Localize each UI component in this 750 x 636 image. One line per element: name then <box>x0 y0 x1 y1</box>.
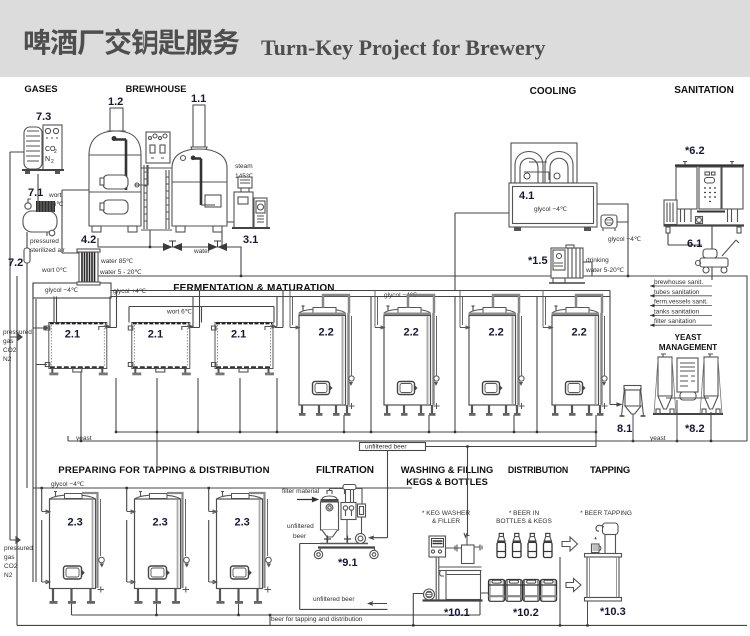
svg-text:tanks sanitation: tanks sanitation <box>654 308 700 315</box>
svg-text:gas: gas <box>3 338 14 345</box>
svg-text:water 85℃: water 85℃ <box>100 258 134 265</box>
svg-text:CO2: CO2 <box>4 563 18 570</box>
svg-text:TAPPING: TAPPING <box>590 465 630 476</box>
svg-text:ferm.vessels sanit.: ferm.vessels sanit. <box>654 299 708 306</box>
svg-text:2.2: 2.2 <box>319 327 334 339</box>
svg-text:yeast: yeast <box>76 435 92 442</box>
svg-text:2: 2 <box>51 159 54 165</box>
svg-text:Turn-Key Project for Brewery: Turn-Key Project for Brewery <box>261 35 546 60</box>
svg-text:FILTRATION: FILTRATION <box>316 465 374 476</box>
svg-text:glycol −4℃: glycol −4℃ <box>608 236 642 243</box>
svg-text:7.3: 7.3 <box>36 111 51 123</box>
svg-text:tubes sanitation: tubes sanitation <box>654 289 700 296</box>
svg-text:gas: gas <box>4 554 15 561</box>
svg-text:wort 0℃: wort 0℃ <box>41 267 68 274</box>
svg-text:*1.5: *1.5 <box>528 255 548 267</box>
svg-text:2.3: 2.3 <box>235 517 250 529</box>
svg-text:glycol −4℃: glycol −4℃ <box>51 481 85 488</box>
svg-text:DISTRIBUTION: DISTRIBUTION <box>508 465 568 475</box>
svg-text:2.2: 2.2 <box>572 327 587 339</box>
svg-text:2.2: 2.2 <box>404 327 419 339</box>
svg-text:steam: steam <box>235 163 253 170</box>
svg-text:6.1: 6.1 <box>687 238 702 250</box>
svg-text:1.2: 1.2 <box>108 96 123 108</box>
svg-text:glycol −4℃: glycol −4℃ <box>534 206 568 213</box>
svg-text:yeast: yeast <box>650 435 666 442</box>
svg-text:FERMENTATION & MATURATION: FERMENTATION & MATURATION <box>173 283 334 294</box>
svg-text:unfiltered beer: unfiltered beer <box>313 596 355 603</box>
svg-text:N2: N2 <box>3 356 12 363</box>
svg-text:brewhouse sanit.: brewhouse sanit. <box>654 279 703 286</box>
svg-text:2.1: 2.1 <box>148 329 163 341</box>
svg-text:COOLING: COOLING <box>530 86 577 97</box>
svg-text:beer: beer <box>293 533 307 540</box>
svg-text:unfiltered: unfiltered <box>287 523 314 530</box>
svg-text:2.3: 2.3 <box>153 517 168 529</box>
svg-text:2.3: 2.3 <box>68 517 83 529</box>
svg-text:wort 6℃: wort 6℃ <box>166 309 193 316</box>
svg-text:glycol −4℃: glycol −4℃ <box>45 287 79 294</box>
svg-text:pressured: pressured <box>4 545 33 552</box>
svg-text:1.1: 1.1 <box>191 93 206 105</box>
svg-text:PREPARING FOR TAPPING & DISTRI: PREPARING FOR TAPPING & DISTRIBUTION <box>58 465 270 476</box>
svg-text:filter sanitation: filter sanitation <box>654 318 696 325</box>
svg-text:8.1: 8.1 <box>617 423 632 435</box>
svg-text:pressured: pressured <box>3 329 32 336</box>
svg-text:4.2: 4.2 <box>81 234 96 246</box>
svg-text:WASHING & FILLING: WASHING & FILLING <box>401 465 493 475</box>
svg-text:* BEER IN: * BEER IN <box>509 510 540 517</box>
svg-text:*6.2: *6.2 <box>685 145 705 157</box>
svg-text:BOTTLES & KEGS: BOTTLES & KEGS <box>496 518 552 525</box>
svg-text:4.1: 4.1 <box>519 190 534 202</box>
svg-text:3.1: 3.1 <box>243 234 258 246</box>
svg-text:7.1: 7.1 <box>28 187 43 199</box>
svg-text:water 5-20℃: water 5-20℃ <box>585 267 625 274</box>
svg-text:GASES: GASES <box>24 84 57 95</box>
svg-text:*9.1: *9.1 <box>338 557 358 569</box>
svg-text:* BEER TAPPING: * BEER TAPPING <box>580 510 632 517</box>
svg-text:& FILLER: & FILLER <box>432 518 460 525</box>
svg-text:2.2: 2.2 <box>489 327 504 339</box>
svg-text:N: N <box>45 156 50 163</box>
svg-text:KEGS & BOTTLES: KEGS & BOTTLES <box>406 477 488 487</box>
svg-text:sterilized air: sterilized air <box>30 247 66 254</box>
svg-text:*8.2: *8.2 <box>685 423 705 435</box>
svg-text:N2: N2 <box>4 572 13 579</box>
svg-text:pressured: pressured <box>30 238 59 245</box>
svg-text:SANITATION: SANITATION <box>674 85 734 96</box>
svg-text:2.1: 2.1 <box>65 329 80 341</box>
svg-text:unfiltered beer: unfiltered beer <box>365 444 407 451</box>
svg-text:wort: wort <box>48 192 61 199</box>
svg-text:CO2: CO2 <box>3 347 17 354</box>
svg-text:*10.1: *10.1 <box>444 607 470 619</box>
svg-text:*10.2: *10.2 <box>513 607 539 619</box>
svg-text:BREWHOUSE: BREWHOUSE <box>126 84 187 94</box>
svg-text:water 5 - 20℃: water 5 - 20℃ <box>99 269 142 276</box>
svg-text:2: 2 <box>54 149 57 155</box>
svg-text:glycol +4℃: glycol +4℃ <box>113 288 147 295</box>
svg-text:filter material: filter material <box>282 488 320 495</box>
svg-text:beer for tapping and distribut: beer for tapping and distribution <box>271 616 363 623</box>
svg-text:MANAGEMENT: MANAGEMENT <box>659 343 717 352</box>
svg-text:7.2: 7.2 <box>8 257 23 269</box>
svg-text:YEAST: YEAST <box>675 333 702 342</box>
svg-text:*10.3: *10.3 <box>600 606 626 618</box>
svg-text:* KEG WASHER: * KEG WASHER <box>422 510 470 517</box>
svg-text:2.1: 2.1 <box>231 329 246 341</box>
svg-text:drinking: drinking <box>586 257 609 264</box>
